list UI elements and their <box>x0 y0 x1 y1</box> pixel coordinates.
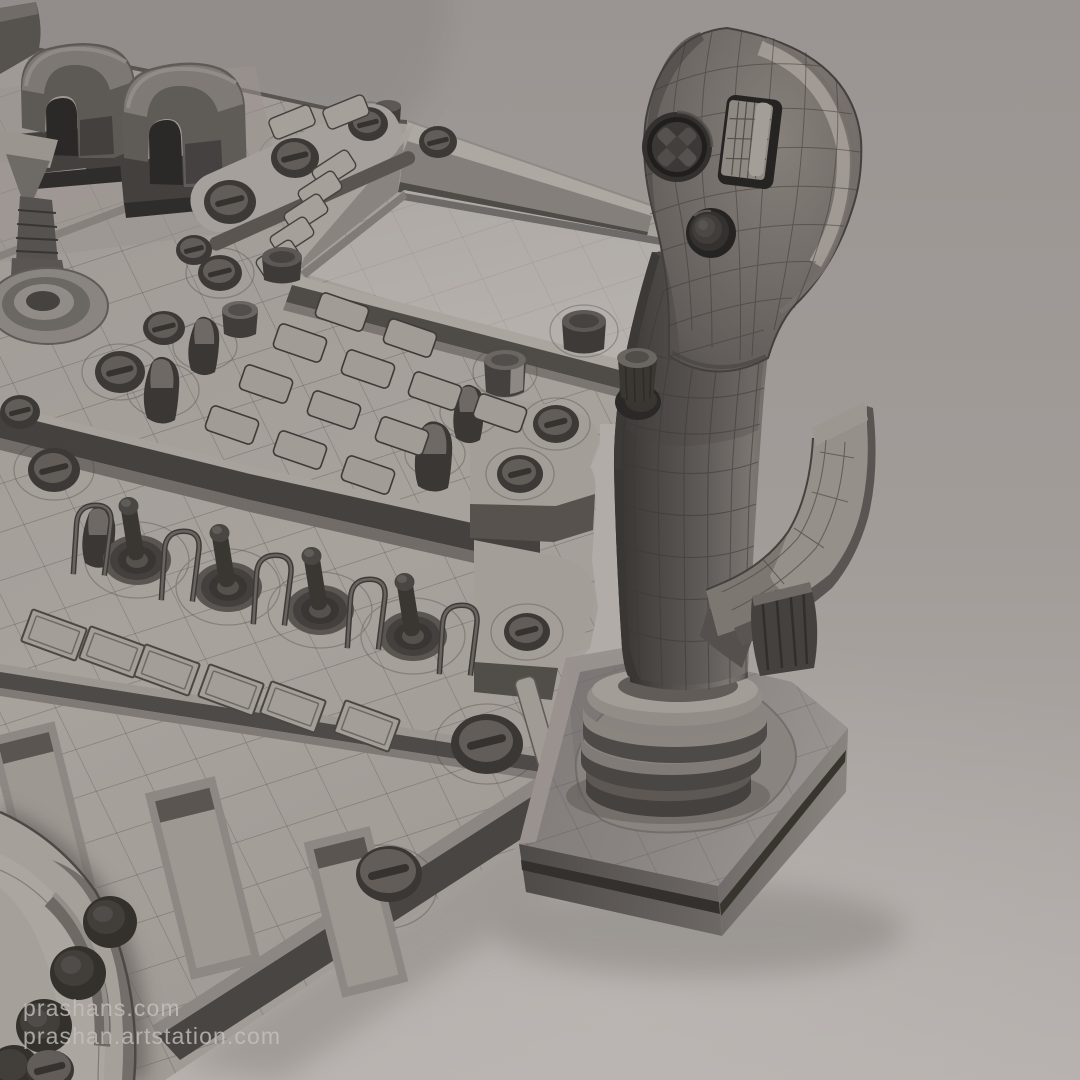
svg-text:prashan.artstation.com: prashan.artstation.com <box>23 1023 281 1049</box>
svg-text:prashans.com: prashans.com <box>23 995 181 1021</box>
